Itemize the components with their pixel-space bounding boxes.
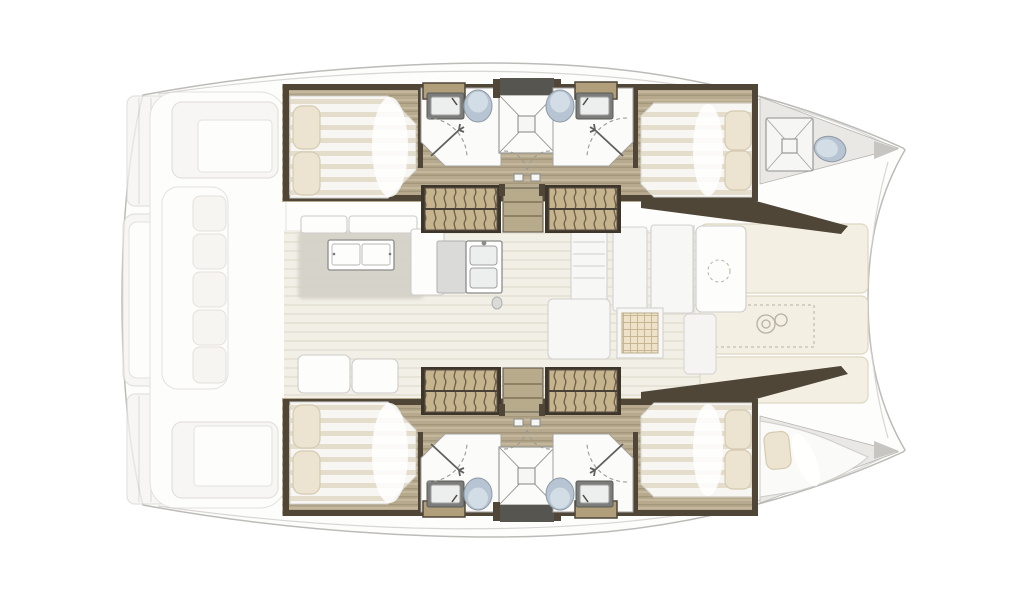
deck-hatch xyxy=(500,78,554,95)
saloon-bench xyxy=(298,355,350,393)
saloon-bench xyxy=(349,216,417,233)
foredeck-door xyxy=(696,226,746,312)
shower-drain xyxy=(518,116,535,132)
galley-tall-cabinet xyxy=(613,227,647,311)
toilet-icon xyxy=(464,90,492,122)
stove-icon xyxy=(622,313,658,353)
door-hinge xyxy=(514,174,523,181)
cockpit-bench-cushion xyxy=(193,234,226,269)
cockpit-bench-cushion xyxy=(193,196,226,231)
door-hinge xyxy=(531,174,540,181)
bed-fold-highlight xyxy=(693,104,723,196)
catamaran-floor-plan xyxy=(0,0,1024,600)
table-end-fitting xyxy=(333,253,336,256)
forward-cabin xyxy=(641,90,758,200)
cockpit-bench-cushion xyxy=(193,272,226,307)
bed-fold-highlight xyxy=(372,97,408,197)
cockpit-panel-top-inner xyxy=(198,120,272,172)
companionway-stairs xyxy=(421,185,501,233)
companionway-stairs xyxy=(545,185,621,233)
galley-counter xyxy=(548,299,610,359)
aft-bathroom xyxy=(421,83,501,166)
foredeck-side-panel xyxy=(684,314,716,374)
stairs-landing xyxy=(499,184,545,232)
dining-table-leaf xyxy=(362,244,390,265)
kettle-icon xyxy=(492,297,502,309)
hatch-post xyxy=(493,79,500,98)
cockpit-bench-cushion xyxy=(193,347,226,383)
saloon-bench xyxy=(301,216,347,233)
berth-pillow xyxy=(763,431,792,470)
cockpit-panel-bottom-inner xyxy=(194,426,272,486)
galley-appliance xyxy=(437,241,466,293)
floor-plan-canvas xyxy=(0,0,1024,600)
toilet-icon xyxy=(546,90,574,122)
forward-bathroom xyxy=(546,82,633,166)
table-end-fitting xyxy=(389,253,392,256)
bed-pillow xyxy=(293,106,320,149)
aft-cabin xyxy=(290,96,416,198)
cockpit-bench-cushion xyxy=(193,310,226,345)
bed-pillow xyxy=(293,152,320,195)
saloon-bench xyxy=(352,359,398,393)
forepeak-storage-crate xyxy=(766,118,813,171)
bed-pillow xyxy=(725,111,751,150)
forward-bulkhead xyxy=(752,90,758,200)
washbasin-icon xyxy=(427,93,464,119)
cabin-partition-wall xyxy=(633,88,638,168)
aft-cockpit-area xyxy=(123,92,286,508)
bed-pillow xyxy=(725,151,751,190)
washbasin-icon xyxy=(576,93,613,119)
galley-tall-cabinet xyxy=(651,225,693,313)
dining-table-leaf xyxy=(332,244,360,265)
galley-double-sink xyxy=(466,241,502,293)
